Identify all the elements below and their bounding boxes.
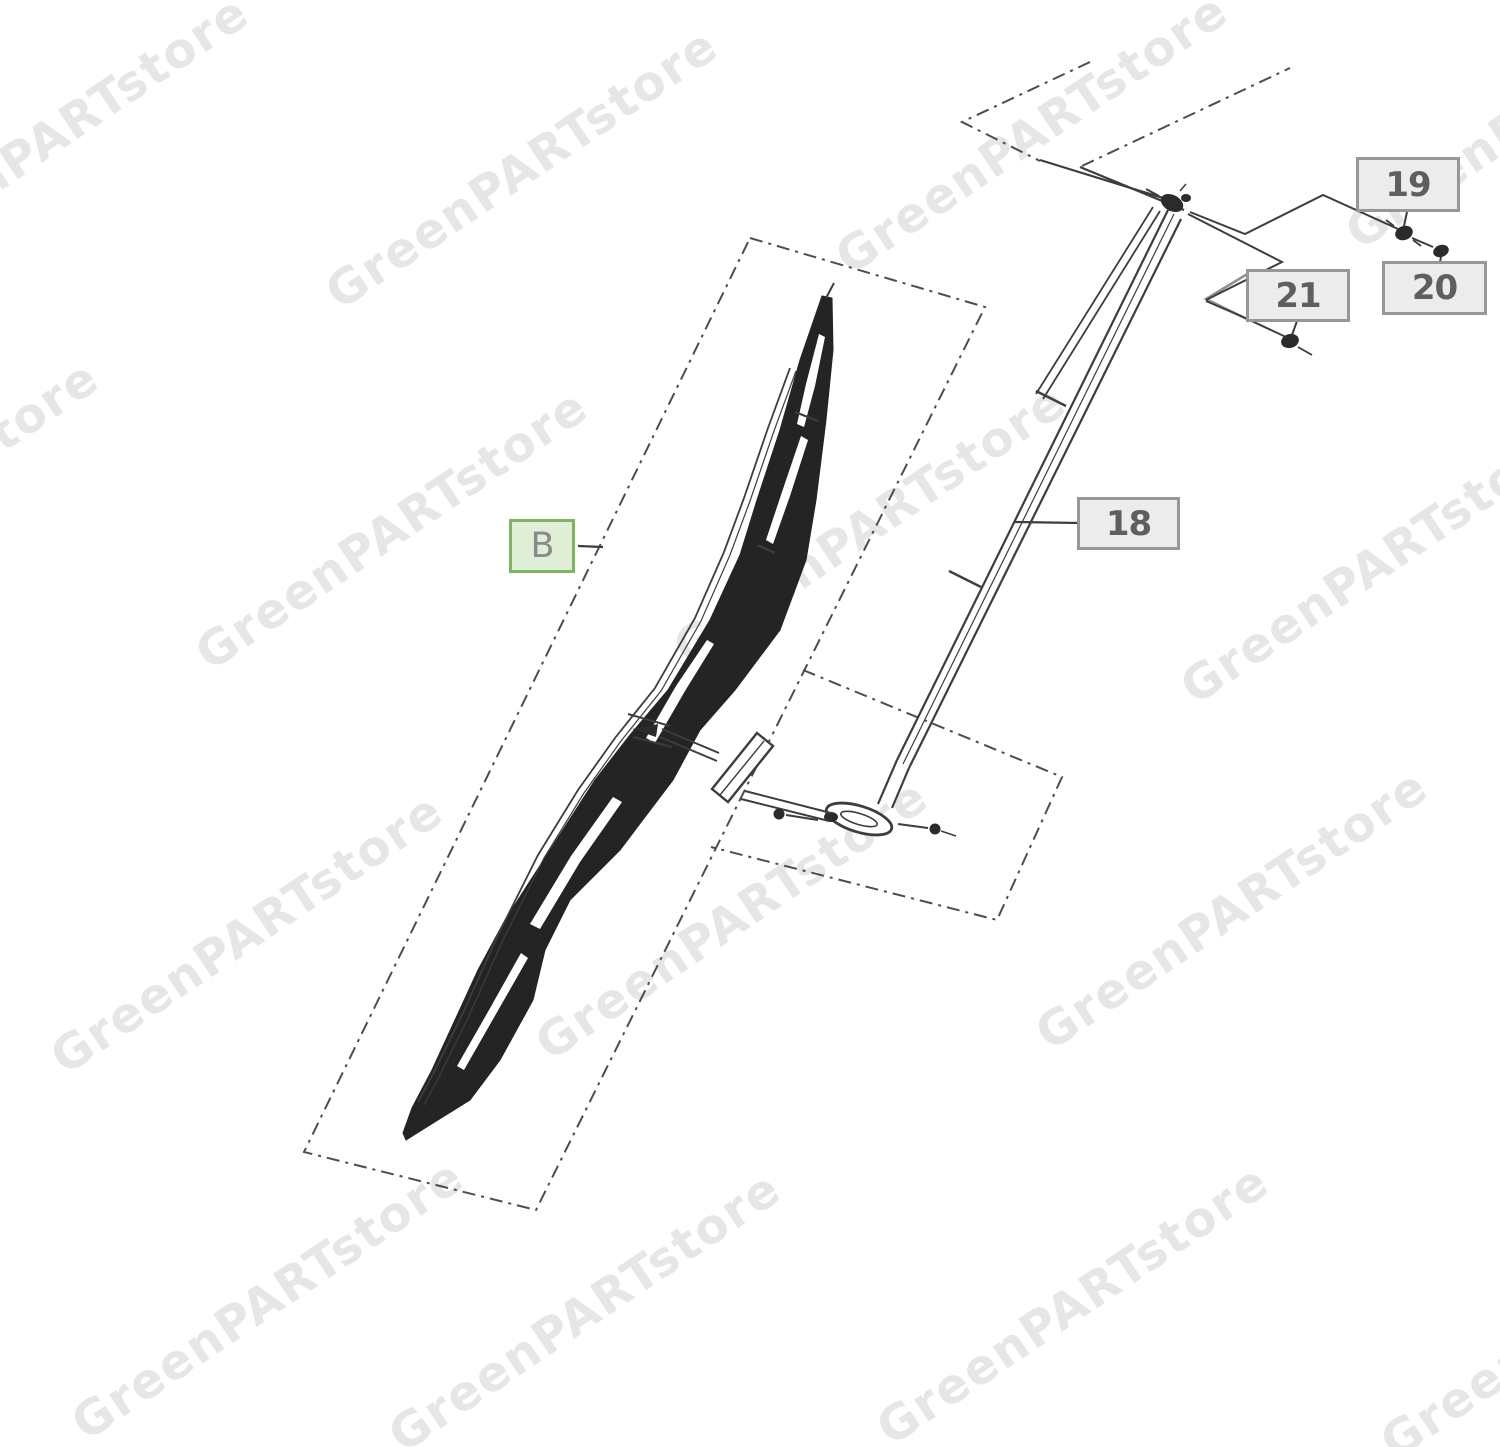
panel-edge-zigzag (962, 62, 1090, 161)
callout-19[interactable]: 19 (1356, 157, 1460, 212)
pivot-pin-left-icon (774, 809, 819, 821)
fastener-20-icon (1431, 243, 1450, 260)
leader-18 (1014, 522, 1080, 523)
callout-b[interactable]: B (509, 519, 575, 573)
callout-21[interactable]: 21 (1246, 269, 1350, 322)
arm-hook-drawing (823, 797, 896, 842)
panel-edge-line (1082, 68, 1290, 166)
leader-lines (578, 195, 1441, 547)
pivot-pin-right-icon (898, 824, 956, 837)
parts-diagram-page: GreenPARTstore GreenPARTstore GreenPARTs… (0, 0, 1500, 1447)
callout-20[interactable]: 20 (1382, 261, 1487, 315)
wiper-blade-drawing (403, 283, 834, 1140)
wiper-assembly-drawing (0, 0, 1500, 1447)
callout-18[interactable]: 18 (1077, 497, 1180, 550)
leader-b (578, 546, 603, 547)
